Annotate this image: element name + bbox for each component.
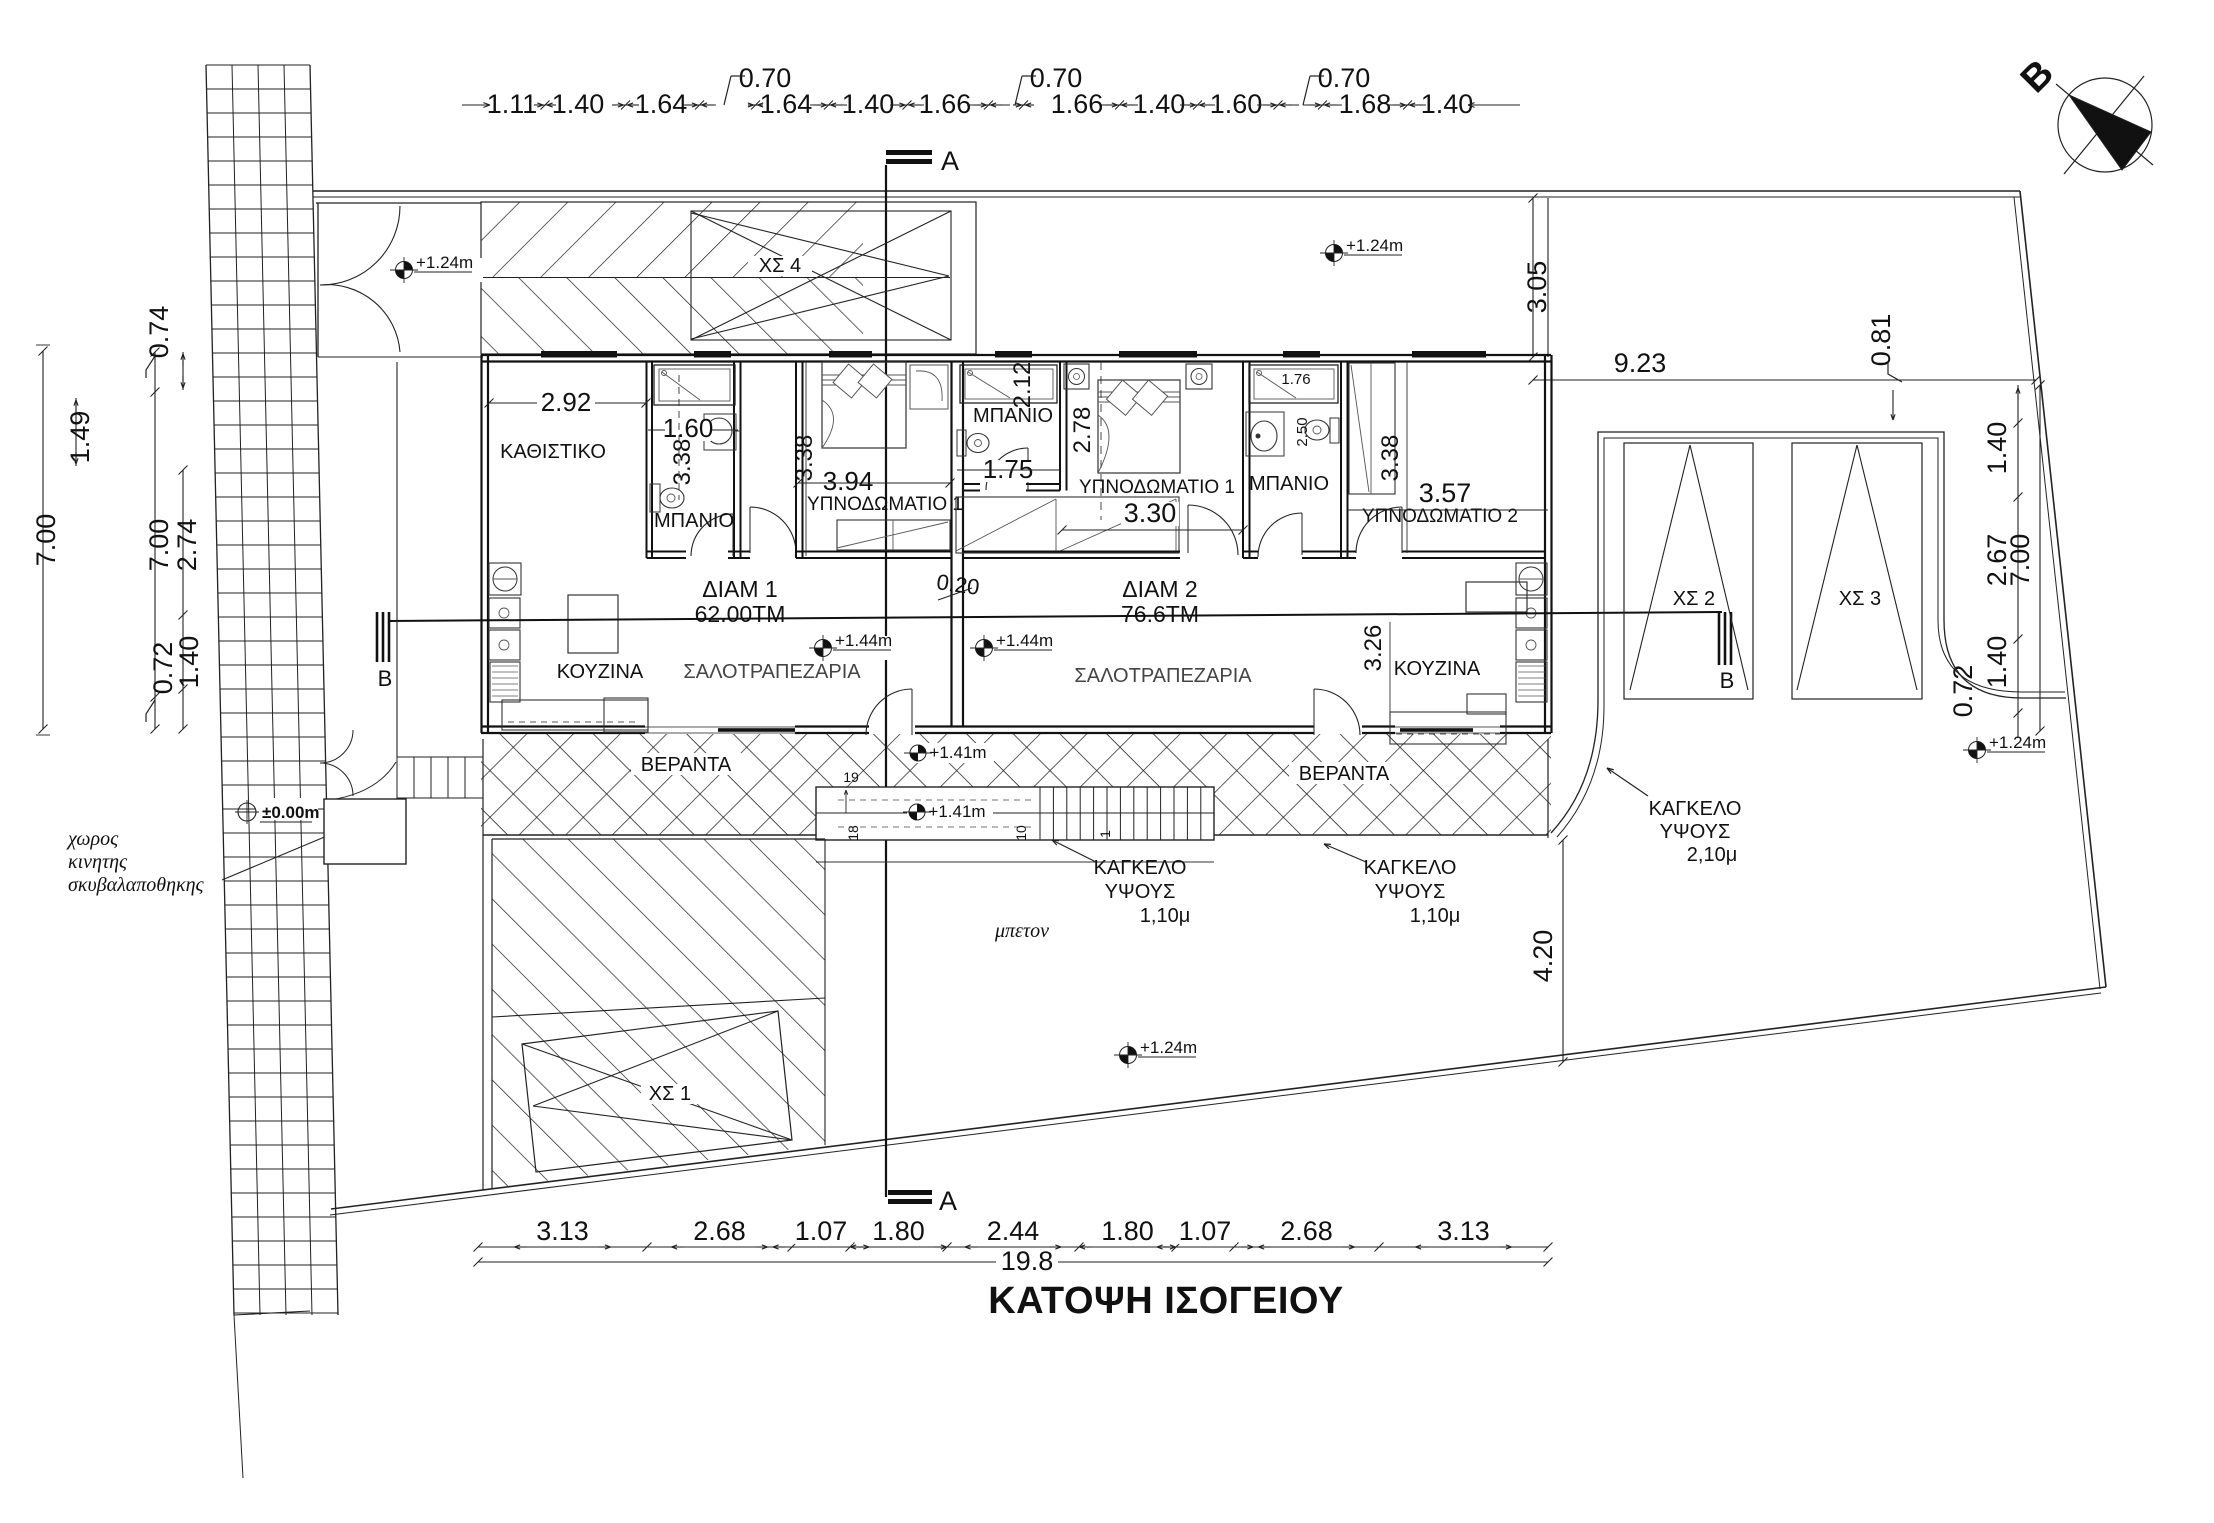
svg-text:ΒΕΡΑΝΤΑ: ΒΕΡΑΝΤΑ: [1299, 763, 1390, 785]
svg-text:3.38: 3.38: [669, 439, 696, 486]
svg-text:ΚΑΓΚΕΛΟ: ΚΑΓΚΕΛΟ: [1649, 798, 1742, 820]
svg-text:+1.44m: +1.44m: [835, 631, 892, 650]
svg-text:ΜΠΑΝΙΟ: ΜΠΑΝΙΟ: [654, 510, 734, 532]
svg-text:ΧΣ 4: ΧΣ 4: [759, 255, 801, 277]
svg-text:3.38: 3.38: [1377, 435, 1404, 482]
svg-text:0.81: 0.81: [1866, 314, 1896, 367]
svg-text:1.40: 1.40: [1133, 89, 1186, 119]
svg-text:ΣΑΛΟΤΡΑΠΕΖΑΡΙΑ: ΣΑΛΟΤΡΑΠΕΖΑΡΙΑ: [1074, 665, 1252, 687]
svg-text:3.57: 3.57: [1419, 478, 1472, 508]
svg-text:B: B: [1720, 668, 1735, 693]
svg-text:0.72: 0.72: [1948, 665, 1978, 718]
svg-text:1.64: 1.64: [635, 89, 688, 119]
svg-text:ΥΠΝΟΔΩΜΑΤΙΟ 1: ΥΠΝΟΔΩΜΑΤΙΟ 1: [1079, 477, 1235, 498]
svg-text:ΧΣ 3: ΧΣ 3: [1839, 588, 1881, 610]
svg-text:9.23: 9.23: [1614, 348, 1667, 378]
svg-text:2,10μ: 2,10μ: [1687, 844, 1737, 866]
svg-text:2.78: 2.78: [1069, 407, 1096, 454]
svg-text:1.07: 1.07: [795, 1216, 848, 1246]
svg-text:0.70: 0.70: [739, 63, 792, 93]
svg-text:ΥΠΝΟΔΩΜΑΤΙΟ 1: ΥΠΝΟΔΩΜΑΤΙΟ 1: [807, 494, 963, 515]
svg-text:ΥΨΟΥΣ: ΥΨΟΥΣ: [1105, 881, 1176, 903]
svg-text:1.68: 1.68: [1339, 89, 1392, 119]
svg-text:1,10μ: 1,10μ: [1410, 905, 1460, 927]
svg-text:2.68: 2.68: [693, 1216, 746, 1246]
svg-text:19.8: 19.8: [1001, 1246, 1054, 1276]
svg-text:1.40: 1.40: [1982, 636, 2012, 689]
svg-text:+1.41m: +1.41m: [928, 802, 985, 821]
svg-text:A: A: [941, 146, 959, 176]
svg-text:1.07: 1.07: [1179, 1216, 1232, 1246]
svg-text:2.68: 2.68: [1280, 1216, 1333, 1246]
svg-text:18: 18: [845, 825, 861, 841]
svg-text:3.30: 3.30: [1124, 498, 1177, 528]
svg-text:7.00: 7.00: [31, 514, 61, 567]
svg-text:3.13: 3.13: [1437, 1216, 1490, 1246]
svg-text:ΥΠΝΟΔΩΜΑΤΙΟ 2: ΥΠΝΟΔΩΜΑΤΙΟ 2: [1362, 506, 1518, 527]
svg-text:1: 1: [1097, 830, 1113, 838]
svg-text:1.66: 1.66: [1051, 89, 1104, 119]
svg-text:+1.24m: +1.24m: [1140, 1038, 1197, 1057]
svg-text:ΣΑΛΟΤΡΑΠΕΖΑΡΙΑ: ΣΑΛΟΤΡΑΠΕΖΑΡΙΑ: [683, 661, 861, 683]
svg-text:7.00: 7.00: [2005, 534, 2035, 587]
svg-text:0.70: 0.70: [1030, 63, 1083, 93]
svg-text:ΜΠΑΝΙΟ: ΜΠΑΝΙΟ: [1249, 473, 1329, 495]
svg-text:+1.24m: +1.24m: [1346, 236, 1403, 255]
svg-text:χωρος: χωρος: [66, 828, 119, 850]
svg-text:1.60: 1.60: [1210, 89, 1263, 119]
svg-text:0.70: 0.70: [1318, 63, 1371, 93]
svg-text:1.40: 1.40: [1421, 89, 1474, 119]
svg-text:ΔΙΑΜ 1: ΔΙΑΜ 1: [702, 576, 777, 602]
svg-text:2.44: 2.44: [987, 1216, 1040, 1246]
svg-text:A: A: [939, 1186, 957, 1216]
svg-text:κινητης: κινητης: [68, 851, 128, 873]
svg-text:3.26: 3.26: [1360, 625, 1387, 672]
svg-text:1.40: 1.40: [842, 89, 895, 119]
svg-text:2.92: 2.92: [541, 387, 592, 417]
svg-text:1.40: 1.40: [174, 636, 204, 689]
svg-text:ΚΟΥΖΙΝΑ: ΚΟΥΖΙΝΑ: [1394, 658, 1481, 680]
svg-text:1.80: 1.80: [1101, 1216, 1154, 1246]
svg-text:1.11: 1.11: [487, 89, 538, 119]
svg-text:1.80: 1.80: [872, 1216, 925, 1246]
svg-text:1.40: 1.40: [1982, 422, 2012, 475]
svg-text:σκυβαλαποθηκης: σκυβαλαποθηκης: [68, 874, 205, 896]
svg-text:1.76: 1.76: [1281, 371, 1310, 388]
svg-text:0.74: 0.74: [144, 306, 174, 359]
svg-text:1.66: 1.66: [919, 89, 972, 119]
svg-text:19: 19: [843, 769, 859, 785]
svg-text:7.00: 7.00: [144, 519, 174, 572]
svg-text:76.6ΤΜ: 76.6ΤΜ: [1121, 601, 1199, 627]
svg-text:1.40: 1.40: [552, 89, 605, 119]
svg-text:ΧΣ 1: ΧΣ 1: [649, 1083, 691, 1105]
svg-text:ΥΨΟΥΣ: ΥΨΟΥΣ: [1375, 881, 1446, 903]
svg-text:2.74: 2.74: [172, 519, 202, 572]
svg-text:3.38: 3.38: [791, 435, 818, 482]
svg-text:1.64: 1.64: [760, 89, 813, 119]
svg-text:1.75: 1.75: [983, 454, 1034, 484]
svg-text:3.94: 3.94: [823, 466, 874, 496]
svg-text:1.49: 1.49: [65, 411, 95, 464]
svg-text:1,10μ: 1,10μ: [1140, 905, 1190, 927]
svg-text:ΔΙΑΜ 2: ΔΙΑΜ 2: [1122, 576, 1197, 602]
svg-text:4.20: 4.20: [1528, 930, 1558, 983]
svg-text:+1.24m: +1.24m: [1989, 733, 2046, 752]
svg-text:2.12: 2.12: [1009, 362, 1036, 409]
svg-text:ΚΑΓΚΕΛΟ: ΚΑΓΚΕΛΟ: [1364, 857, 1457, 879]
svg-text:ΚΑΘΙΣΤΙΚΟ: ΚΑΘΙΣΤΙΚΟ: [500, 441, 606, 463]
svg-text:3.05: 3.05: [1522, 261, 1552, 314]
svg-text:+1.44m: +1.44m: [996, 631, 1053, 650]
svg-text:62.00ΤΜ: 62.00ΤΜ: [695, 601, 786, 627]
svg-text:ΚΑΓΚΕΛΟ: ΚΑΓΚΕΛΟ: [1094, 857, 1187, 879]
svg-text:ΒΕΡΑΝΤΑ: ΒΕΡΑΝΤΑ: [641, 754, 732, 776]
svg-text:ΥΨΟΥΣ: ΥΨΟΥΣ: [1660, 821, 1731, 843]
svg-text:2.50: 2.50: [1294, 417, 1311, 446]
svg-text:ΧΣ 2: ΧΣ 2: [1673, 588, 1715, 610]
svg-text:B: B: [378, 666, 393, 691]
svg-text:3.13: 3.13: [536, 1216, 589, 1246]
svg-text:1.60: 1.60: [663, 413, 714, 443]
svg-text:10: 10: [1013, 825, 1029, 841]
svg-text:ΚΑΤΟΨΗ ΙΣΟΓΕΙΟΥ: ΚΑΤΟΨΗ ΙΣΟΓΕΙΟΥ: [988, 1280, 1344, 1322]
svg-text:±0.00m: ±0.00m: [262, 803, 320, 822]
svg-text:ΚΟΥΖΙΝΑ: ΚΟΥΖΙΝΑ: [557, 661, 644, 683]
svg-text:+1.41m: +1.41m: [929, 743, 986, 762]
svg-text:μπετον: μπετον: [994, 920, 1049, 942]
svg-text:+1.24m: +1.24m: [416, 253, 473, 272]
